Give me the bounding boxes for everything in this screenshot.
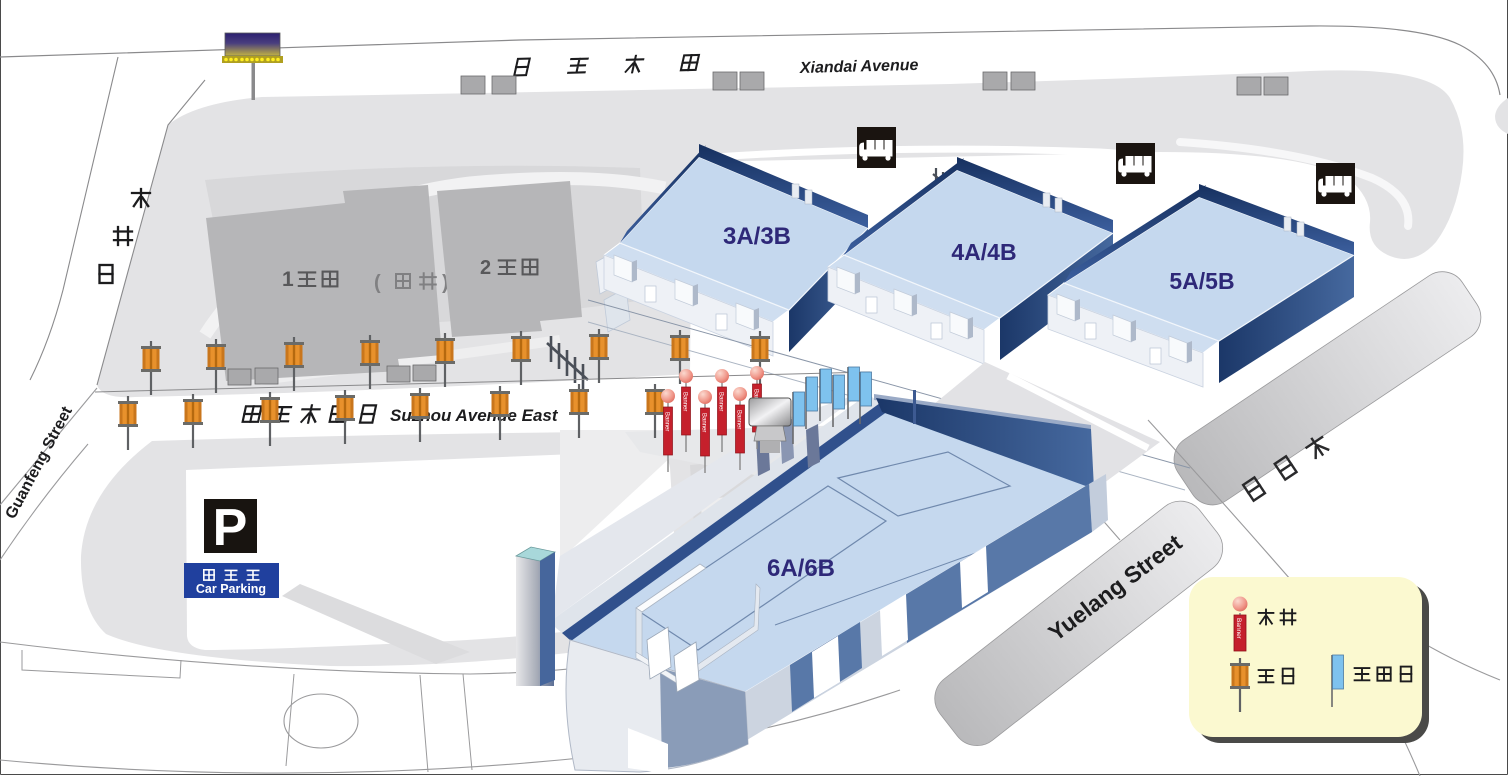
svg-text:Car Parking: Car Parking (196, 582, 266, 596)
svg-text:3A/3B: 3A/3B (723, 223, 791, 250)
svg-text:(: ( (374, 272, 381, 294)
svg-text:2: 2 (480, 257, 491, 279)
svg-text:1: 1 (282, 268, 294, 291)
svg-text:P: P (213, 499, 248, 557)
svg-text:5A/5B: 5A/5B (1169, 268, 1234, 294)
svg-text:Banner: Banner (1235, 618, 1242, 640)
svg-text:4A/4B: 4A/4B (951, 239, 1016, 265)
svg-text:6A/6B: 6A/6B (767, 555, 835, 582)
svg-text:Xiandai Avenue: Xiandai Avenue (799, 57, 919, 77)
